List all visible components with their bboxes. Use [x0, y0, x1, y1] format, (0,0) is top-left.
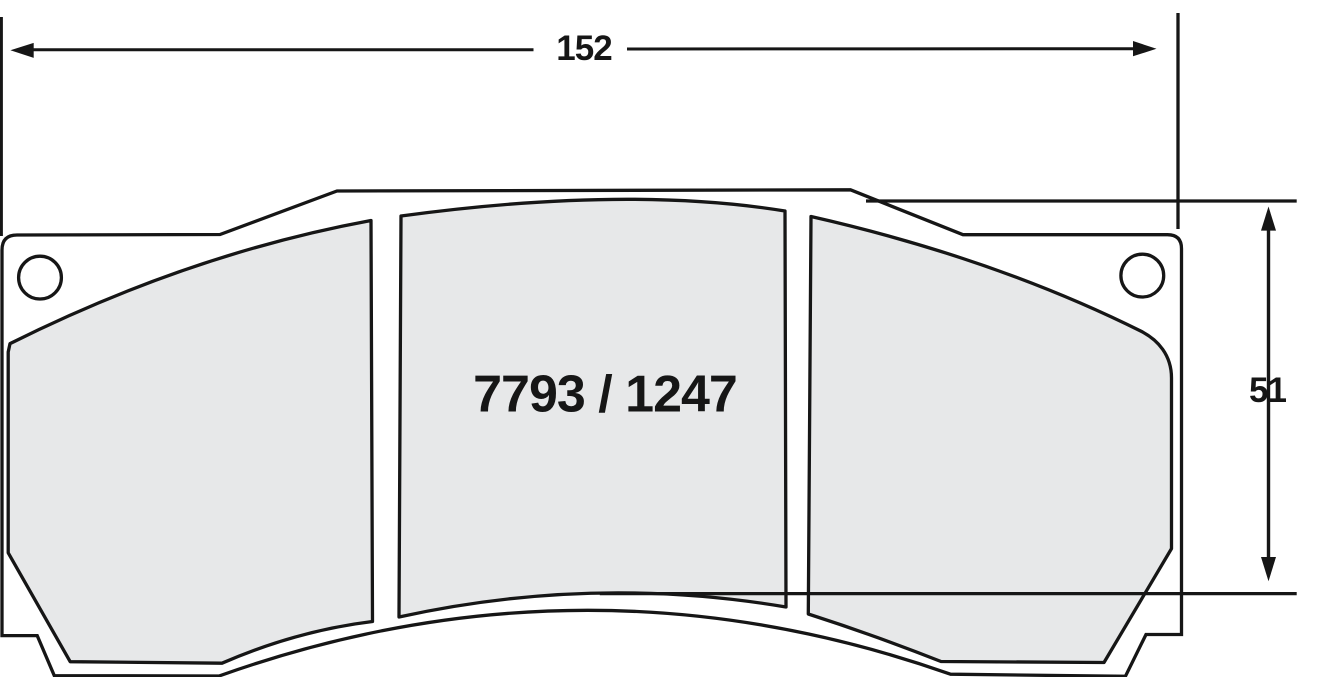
- svg-text:152: 152: [556, 29, 612, 68]
- svg-text:51: 51: [1249, 371, 1286, 410]
- svg-text:7793 / 1247: 7793 / 1247: [473, 366, 737, 424]
